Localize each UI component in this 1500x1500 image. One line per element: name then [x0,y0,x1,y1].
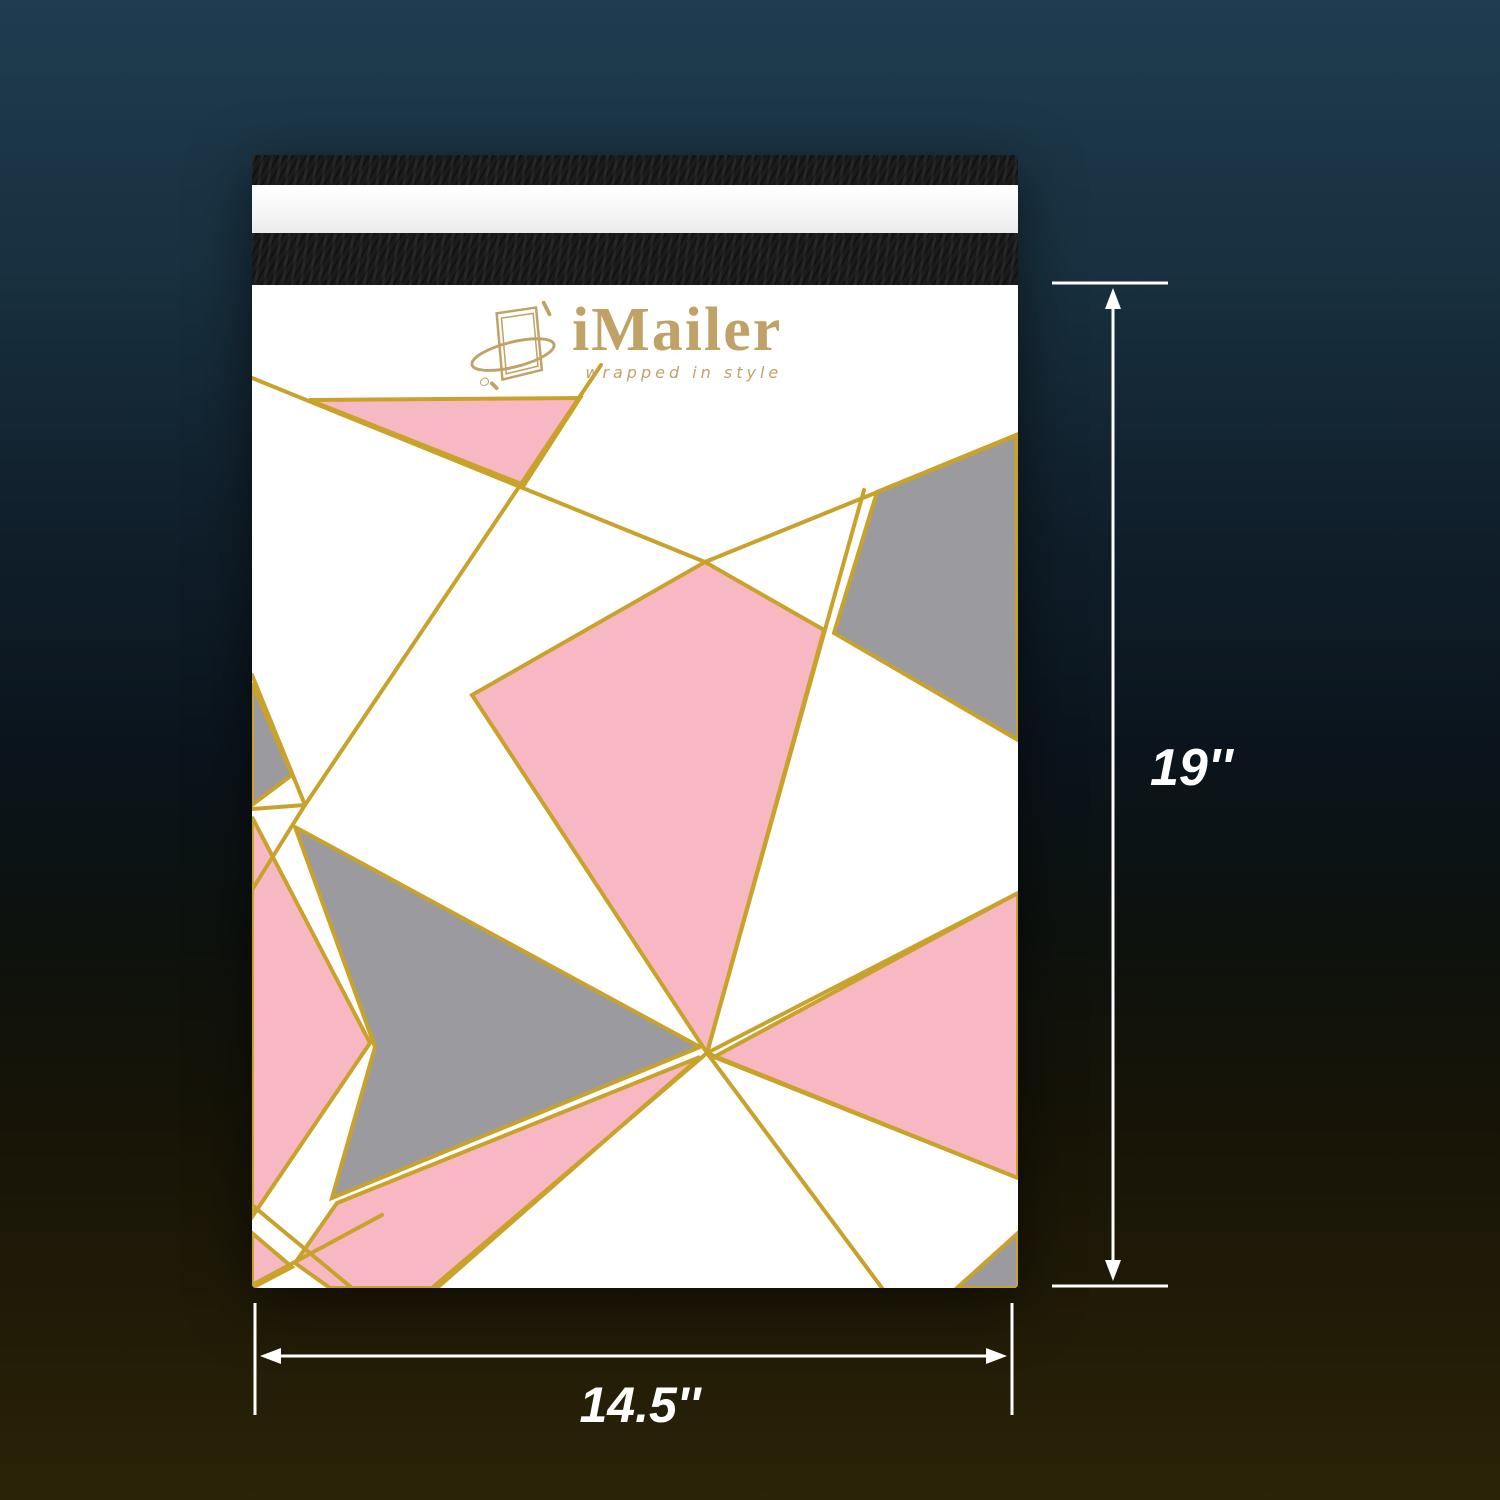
arrow-down-icon [1105,1260,1121,1281]
gray-triangle-bottom-right [957,1233,1018,1288]
brand-tagline: wrapped in style [572,363,782,382]
width-dimension-label: 14.5'' [555,1376,725,1434]
mailer-flap-fold [252,233,1018,285]
adhesive-liner-strip [252,185,1018,233]
arrow-right-icon [986,1348,1007,1364]
arrow-left-icon [260,1348,281,1364]
mailer-body: iMailer wrapped in style [252,285,1018,1288]
brand-logo: iMailer wrapped in style [464,297,782,393]
mailer-flap [252,155,1018,185]
arrow-up-icon [1105,288,1121,309]
brand-text-block: iMailer wrapped in style [572,297,782,382]
brand-name: iMailer [572,297,782,363]
poly-mailer-bag: iMailer wrapped in style [252,155,1018,1288]
height-dimension-label: 19'' [1150,738,1233,798]
geometric-pattern [252,285,1018,1288]
gray-triangle-left-edge [252,683,292,805]
gold-line [252,805,305,809]
product-image: iMailer wrapped in style [0,0,1500,1500]
imailer-book-swoosh-icon [464,297,562,393]
pink-triangle-top [309,398,580,485]
pink-triangle-right [714,893,1018,1178]
gray-quad-right [834,435,1018,740]
